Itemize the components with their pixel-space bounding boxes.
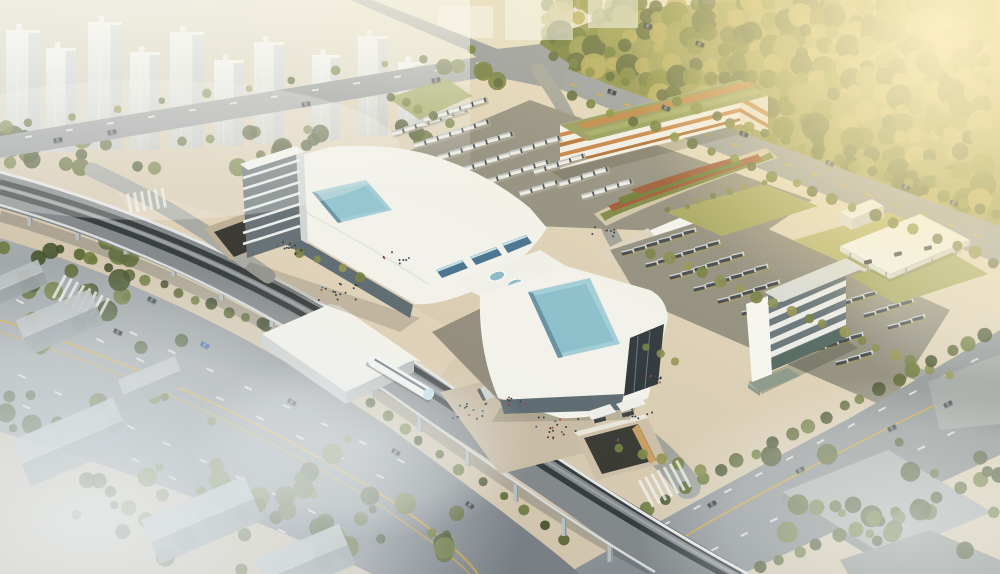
sun-wash <box>0 0 1000 574</box>
atmosphere <box>0 0 1000 574</box>
aerial-rendering <box>0 0 1000 574</box>
rendering-viewport <box>0 0 1000 574</box>
